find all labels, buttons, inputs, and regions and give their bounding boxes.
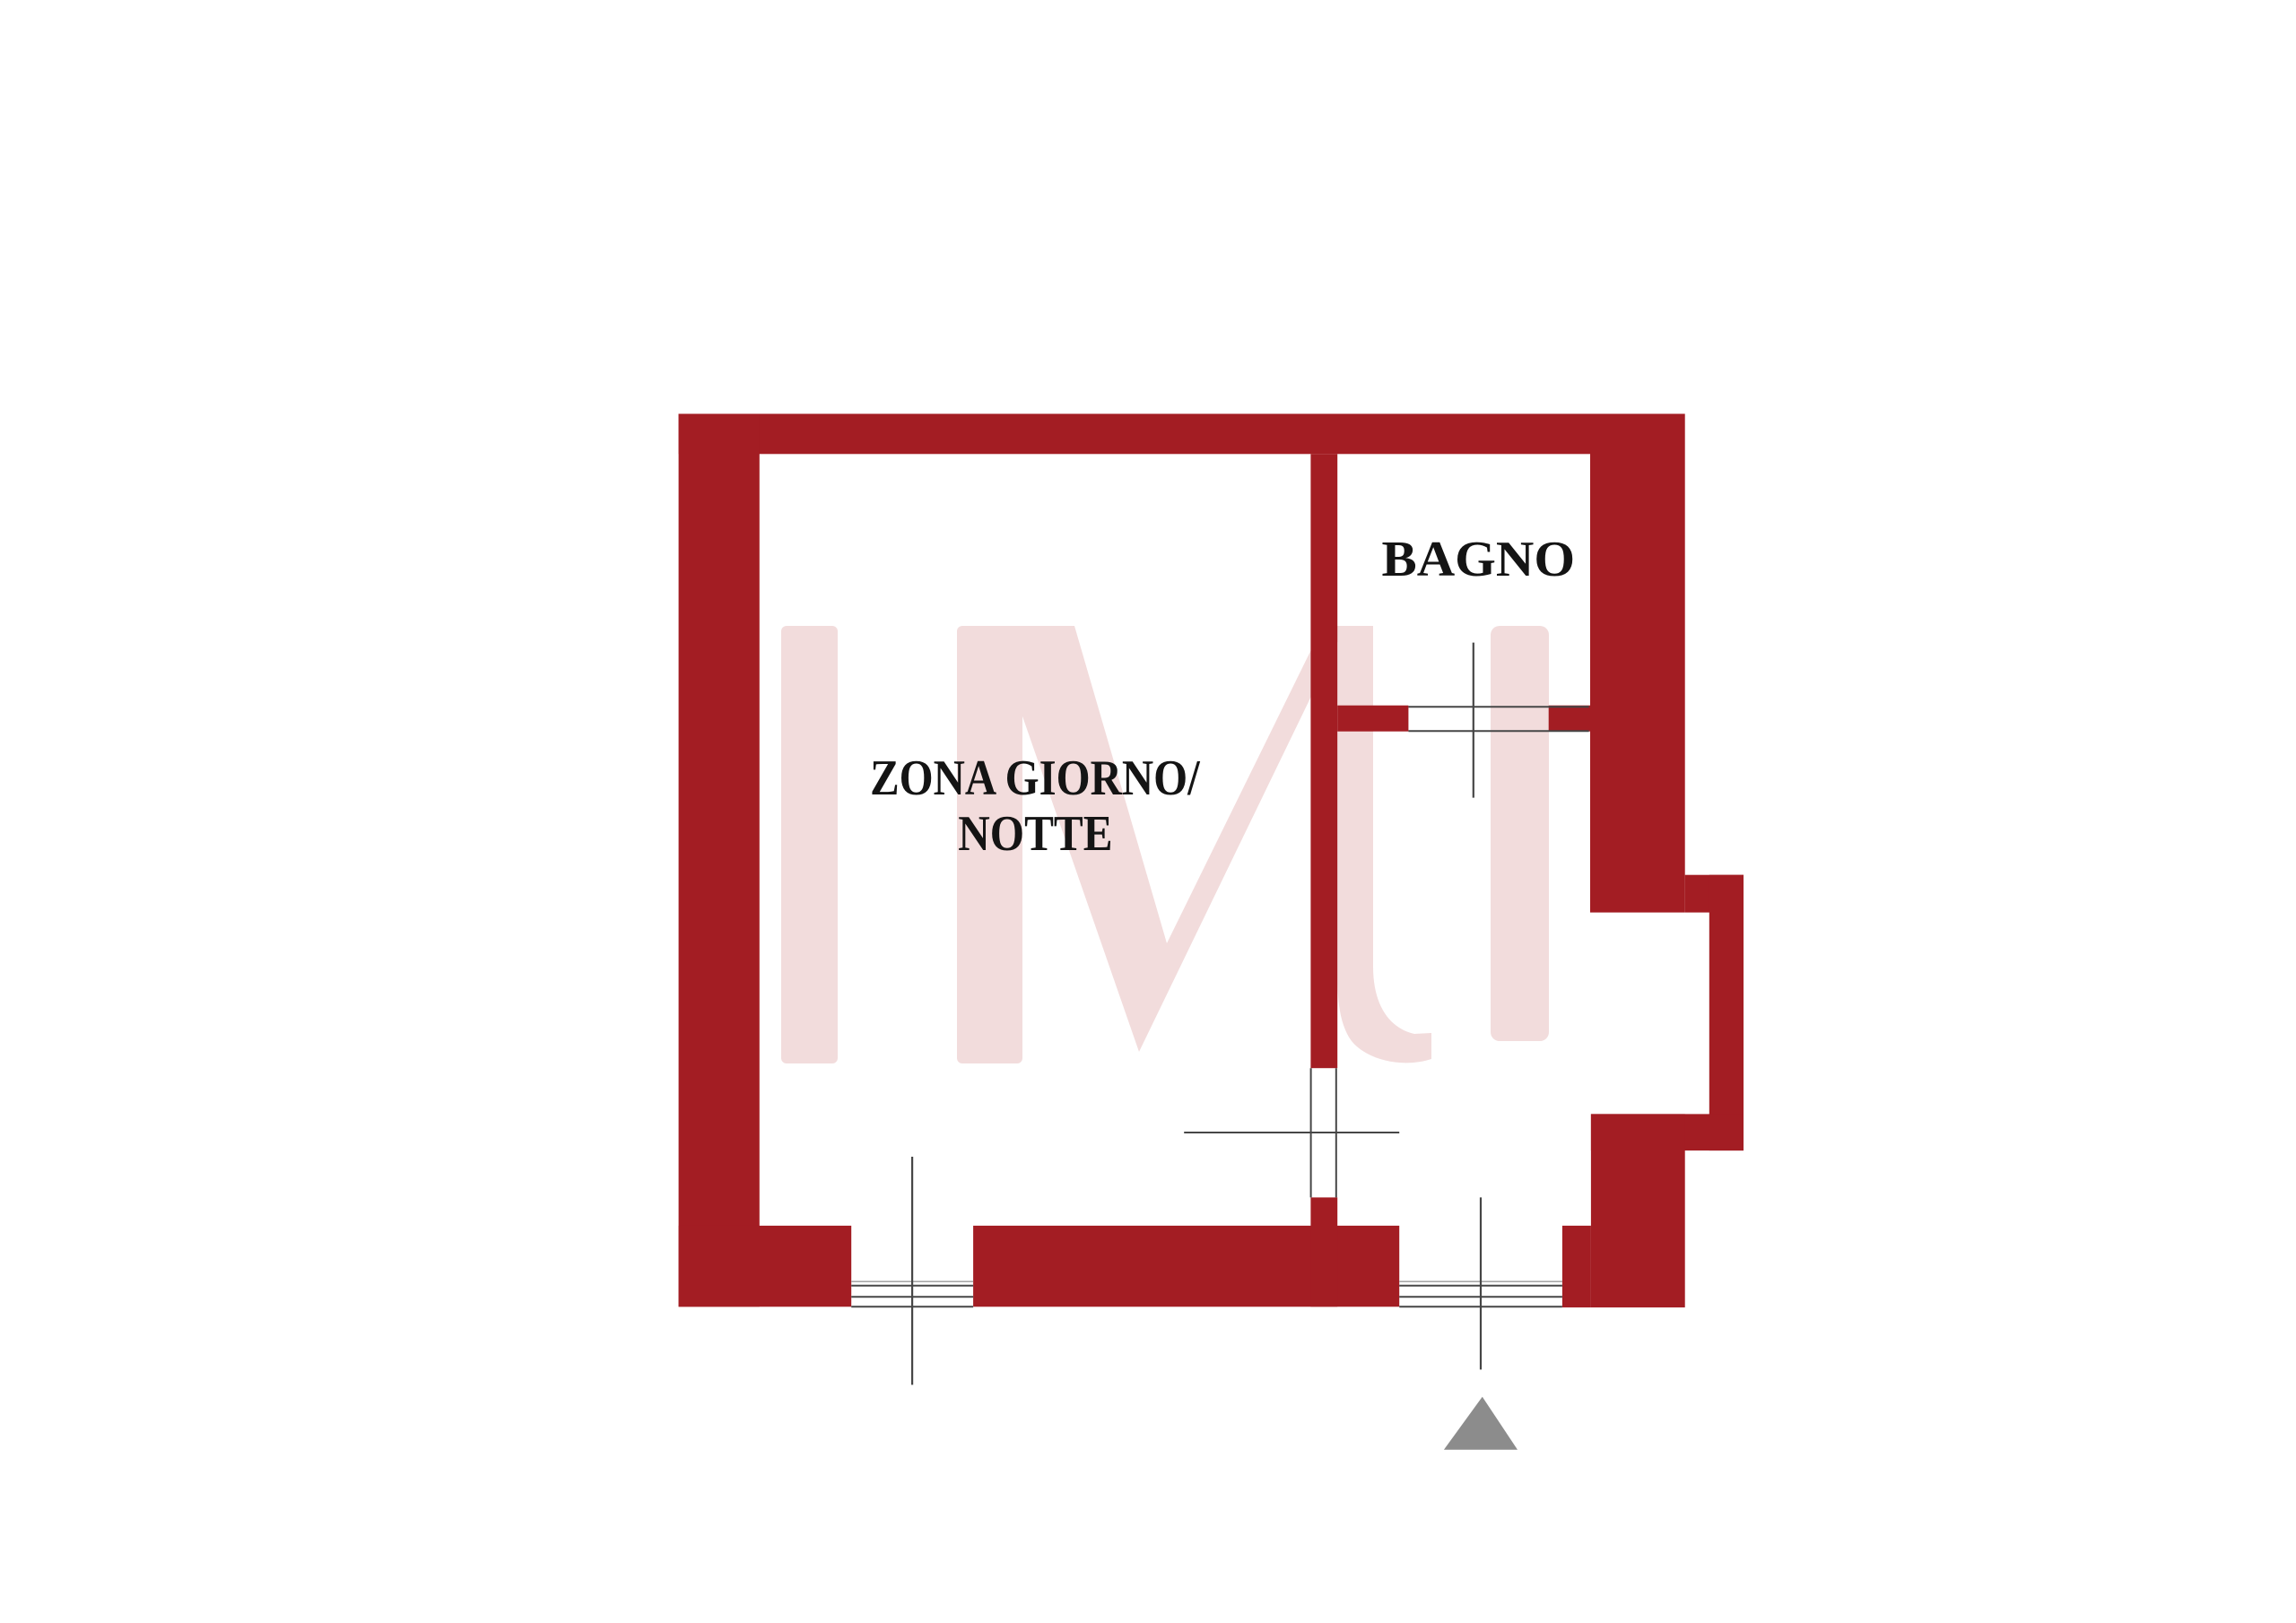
svg-text:ZONA GIORNO/: ZONA GIORNO/ <box>870 751 1201 806</box>
svg-text:NOTTE: NOTTE <box>958 806 1112 862</box>
svg-text:BAGNO: BAGNO <box>1382 532 1576 587</box>
